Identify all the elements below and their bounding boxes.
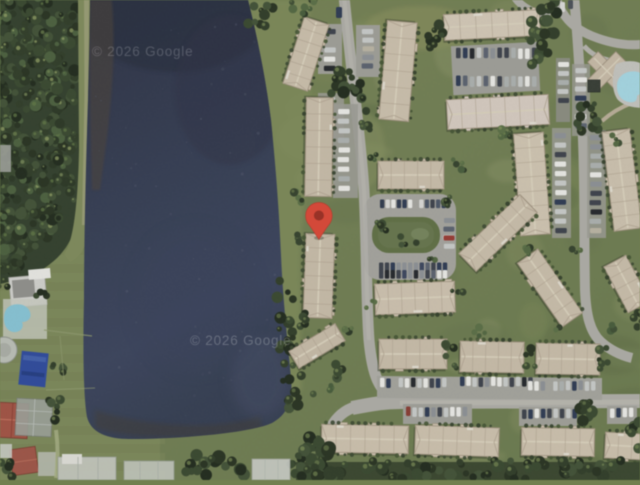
svg-text:© 2026 Google: © 2026 Google [92,44,193,59]
svg-text:© 2026 Google: © 2026 Google [190,333,291,348]
